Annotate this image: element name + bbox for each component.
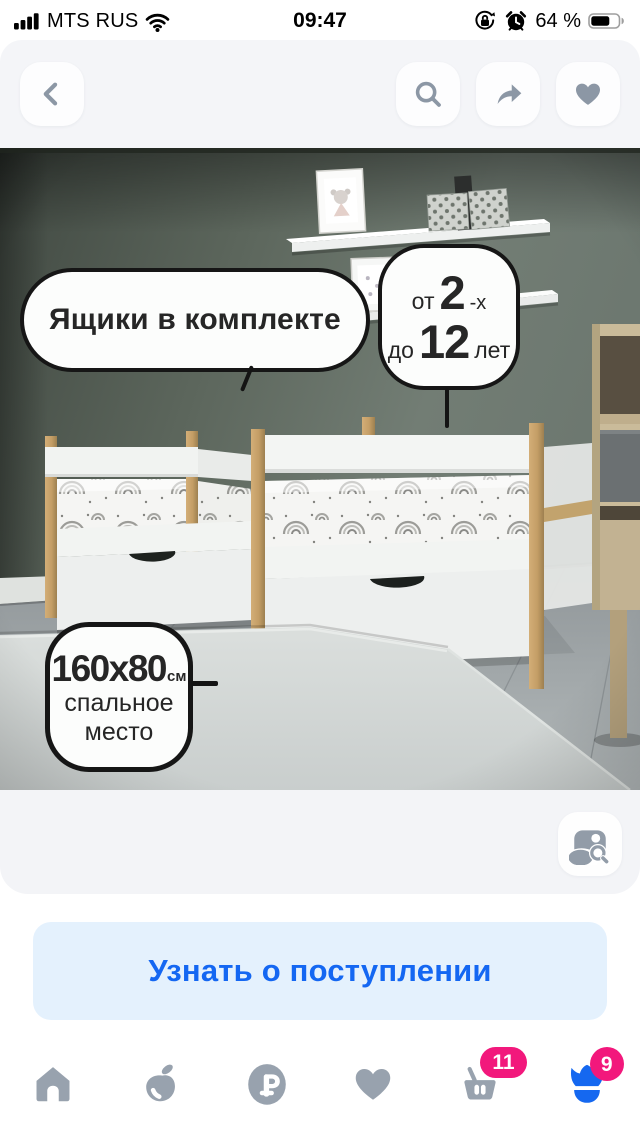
profile-badge: 9 <box>590 1047 624 1081</box>
heart-icon <box>572 78 604 110</box>
size-dimensions: 160x80 <box>52 650 166 687</box>
favorite-button[interactable] <box>556 62 620 126</box>
age-to-value: 12 <box>419 318 469 365</box>
tab-home-icon-wrap <box>29 1060 77 1108</box>
photo-footer-panel <box>0 790 640 894</box>
tab-cart-icon-wrap: 11 <box>456 1060 504 1108</box>
back-button[interactable] <box>20 62 84 126</box>
age-from-suffix: -х <box>470 293 487 313</box>
alarm-clock-icon <box>504 9 528 33</box>
search-by-photo-button[interactable] <box>558 812 622 876</box>
screen: MTS RUS 09:47 <box>0 0 640 1136</box>
battery-icon <box>588 11 626 31</box>
callout-size-pointer <box>191 681 218 686</box>
share-button[interactable] <box>476 62 540 126</box>
callout-bed-size: 160x80 см спальное место <box>45 622 193 772</box>
orientation-lock-icon <box>473 9 497 33</box>
age-from-row: от 2 -х <box>412 269 487 316</box>
house-icon <box>30 1061 76 1107</box>
chevron-left-icon <box>37 79 67 109</box>
tab-cart[interactable]: 11 <box>427 1030 534 1108</box>
tab-prices-icon-wrap <box>243 1060 291 1108</box>
status-bar: MTS RUS 09:47 <box>0 0 640 40</box>
nav-actions-group <box>396 62 620 126</box>
tab-home[interactable] <box>0 1030 107 1108</box>
bottom-tab-bar: 11 9 <box>0 1030 640 1136</box>
cart-badge: 11 <box>480 1047 527 1078</box>
size-caption-line2: место <box>85 719 154 745</box>
tab-products[interactable] <box>107 1030 214 1108</box>
age-from-word: от <box>412 290 435 313</box>
product-photo[interactable]: Ящики в комплекте от 2 -х до 12 лет 160x… <box>0 148 640 790</box>
apple-icon <box>137 1061 183 1107</box>
ruble-icon <box>244 1061 290 1107</box>
tab-favorites-icon-wrap <box>349 1060 397 1108</box>
age-from-value: 2 <box>440 269 465 316</box>
search-button[interactable] <box>396 62 460 126</box>
age-to-suffix: лет <box>474 339 510 362</box>
tab-products-icon-wrap <box>136 1060 184 1108</box>
search-icon <box>412 78 444 110</box>
status-right-group: 64 % <box>473 9 626 33</box>
tab-favorites[interactable] <box>320 1030 427 1108</box>
tab-prices[interactable] <box>213 1030 320 1108</box>
tab-profile-icon-wrap: 9 <box>563 1060 611 1108</box>
age-to-word: до <box>388 339 414 362</box>
tab-profile[interactable]: 9 <box>533 1030 640 1108</box>
notify-availability-button[interactable]: Узнать о поступлении <box>33 922 607 1020</box>
size-row: 160x80 см <box>52 650 187 687</box>
size-unit: см <box>167 669 186 684</box>
notify-availability-label: Узнать о поступлении <box>148 953 491 989</box>
battery-percent: 64 % <box>535 10 581 33</box>
callout-age-range: от 2 -х до 12 лет <box>378 244 520 390</box>
share-icon <box>492 78 524 110</box>
size-caption-line1: спальное <box>64 690 173 716</box>
heart-icon <box>350 1061 396 1107</box>
callout-drawers-text: Ящики в комплекте <box>49 303 341 337</box>
callout-age-pointer <box>445 388 449 428</box>
image-search-icon <box>569 823 611 865</box>
age-to-row: до 12 лет <box>388 318 510 365</box>
callout-drawers-included: Ящики в комплекте <box>20 268 370 372</box>
top-nav-panel <box>0 40 640 148</box>
